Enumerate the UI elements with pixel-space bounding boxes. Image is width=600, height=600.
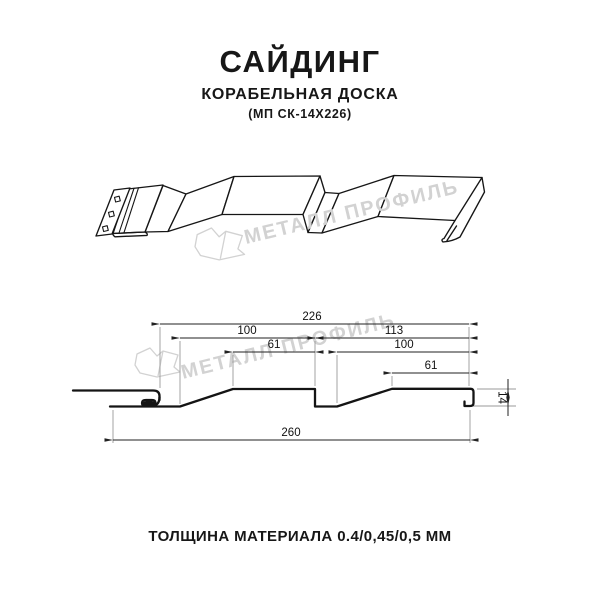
dim-label-100-left: 100 [237,325,256,337]
lock-tab-hem [113,232,147,237]
dim-label-100-right: 100 [394,339,413,351]
section-profile-line [110,389,474,407]
dim-label-14: 14 [496,391,508,404]
dim-label-61-left: 61 [268,339,281,351]
dim-label-113: 113 [385,325,403,337]
dim-label-260: 260 [281,427,300,439]
watermark-logo-icon [135,348,180,377]
product-drawing-page: { "header": { "title": "САЙДИНГ", "subti… [0,0,600,600]
section-profile [73,389,474,407]
section-lock-strip [73,391,160,401]
thickness-note: ТОЛЩИНА МАТЕРИАЛА 0.4/0,45/0,5 ММ [0,528,600,545]
dim-label-226: 226 [302,311,321,323]
technical-drawing: МЕТАЛЛ ПРОФИЛЬ 226 100 113 61 100 61 260… [0,0,600,600]
watermark-logo-icon [195,228,245,260]
watermark-text: МЕТАЛЛ ПРОФИЛЬ [179,309,398,384]
dim-label-61-right: 61 [425,360,438,372]
section-lock-seam [143,401,156,406]
